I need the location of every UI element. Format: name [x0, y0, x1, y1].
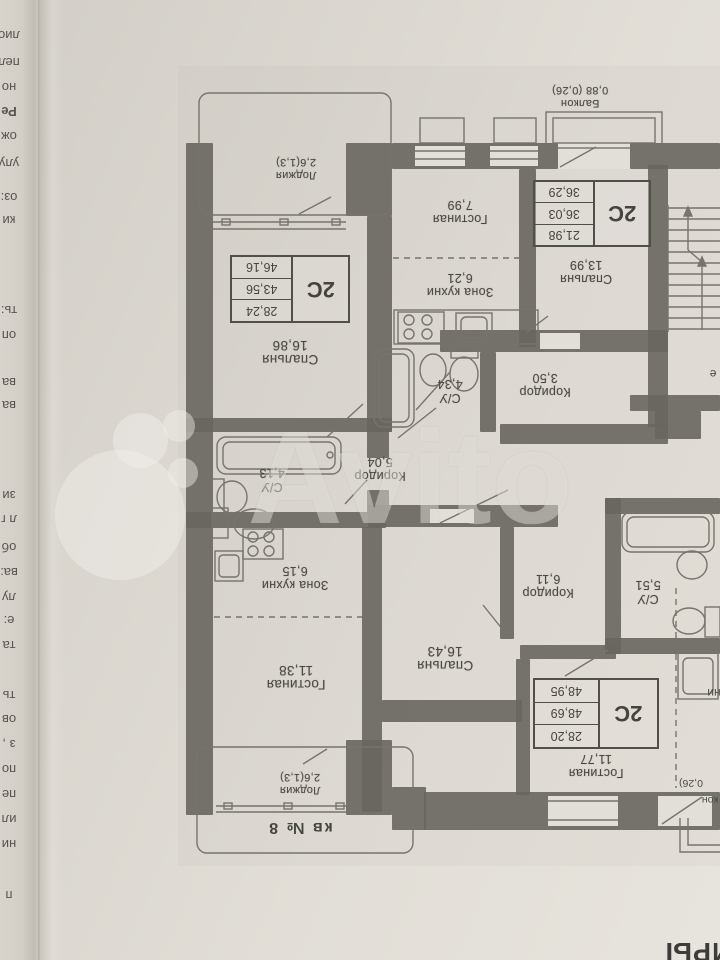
edge-text-fragment: ва — [0, 398, 30, 413]
door-swing-line — [398, 408, 436, 438]
window-line — [548, 797, 702, 824]
kitchen-sink-icon — [456, 313, 492, 342]
edge-text-fragment: ил — [0, 812, 30, 827]
edge-text-fragment: ож — [0, 129, 30, 144]
room-label-kitchen-615: Зона кухни 6,15 — [235, 564, 355, 592]
floor-plan-photo: Лоджия 2,6(1,3) Спальня 16,86 С/У 4,13 К… — [0, 0, 720, 960]
room-label-kitchen-cut: ни — [694, 686, 720, 700]
area-table-apt-bottom-right: 2С 28,20 48,69 48,95 — [533, 678, 659, 749]
room-label-living-1138: Гостиная 11,38 — [236, 663, 356, 691]
door-swing-line — [440, 490, 508, 523]
room-label-corridor-504: Коридор 5,04 — [320, 455, 440, 483]
edge-text-fragment: ни — [0, 837, 30, 852]
unit-number-label: кв № 8 — [225, 818, 375, 836]
edge-text-fragment: Ре — [0, 104, 30, 119]
edge-text-fragment: оз: — [0, 190, 30, 205]
edge-text-fragment: л г — [0, 512, 30, 527]
stove-icon — [398, 312, 444, 343]
room-label-balcony-cut-name: кон — [688, 794, 720, 806]
area-table-apt-top-right: 2С 21,98 36,03 36,29 — [533, 180, 651, 247]
edge-text-fragment: ть: — [0, 303, 30, 318]
right-edge-letter: е — [698, 367, 720, 381]
area-value: 36,29 — [535, 182, 593, 202]
room-label-su-413: С/У 4,13 — [212, 466, 332, 494]
edge-text-fragment: ть — [0, 688, 30, 703]
room-label-balcony-cut-area: 0,26) — [664, 777, 718, 789]
door-swing-line — [483, 605, 503, 630]
stairs-icon — [668, 205, 720, 332]
room-label-corridor-350: Коридор 3,50 — [485, 371, 605, 399]
area-value: 28,20 — [535, 724, 598, 747]
room-label-su-551: С/У 5,51 — [588, 578, 708, 606]
area-table-apt-left: 2С 28,24 43,56 46,16 — [230, 255, 350, 323]
area-value: 48,95 — [535, 680, 598, 702]
door-swing-line — [560, 147, 596, 167]
door-swing-line — [327, 404, 363, 437]
room-label-bedroom-1399: Спальня 13,99 — [526, 258, 646, 286]
area-value: 28,24 — [232, 299, 291, 321]
door-swing-line — [299, 197, 331, 214]
apartment-type-cell: 2С — [291, 257, 348, 321]
edge-text-fragment: пе — [0, 787, 30, 802]
area-value: 46,16 — [232, 257, 291, 278]
room-label-loggia-bottom: Лоджия 2,6(1,3) — [240, 771, 360, 796]
edge-text-fragment: зи — [0, 488, 30, 503]
sink-icon — [677, 551, 707, 579]
door-swing-line — [303, 749, 327, 764]
page-crease — [38, 0, 64, 960]
edge-text-fragment: но — [0, 80, 30, 95]
edge-text-fragment: е: — [0, 613, 30, 628]
area-value: 36,03 — [535, 202, 593, 223]
area-value: 43,56 — [232, 278, 291, 300]
kitchen-counter — [394, 310, 538, 344]
room-label-bedroom-1686: Спальня 16,86 — [230, 338, 350, 366]
balcony-outline — [546, 112, 662, 167]
edge-text-fragment: ва — [0, 375, 30, 390]
edge-text-fragment: оп — [0, 328, 30, 343]
door-swing-line — [345, 480, 367, 504]
door-swing-line — [565, 650, 608, 676]
bathtub-icon — [622, 512, 714, 552]
apartment-type-cell: 2С — [593, 182, 649, 245]
edge-text-fragment: п — [0, 888, 30, 903]
room-label-bedroom-1643: Спальня 16,43 — [385, 644, 505, 672]
edge-text-fragment: ки — [0, 213, 30, 228]
loggia-outline — [197, 747, 413, 853]
edge-text-fragment: улу — [0, 156, 30, 171]
window-line — [415, 118, 538, 159]
room-label-living-1177: Гостиная 11,77 — [536, 752, 656, 780]
edge-text-fragment: з , — [0, 737, 30, 752]
edge-text-fragment: ва: — [0, 565, 30, 580]
edge-text-fragment: та — [0, 638, 30, 653]
edge-text-fragment: по — [0, 762, 30, 777]
room-label-balcony-top: Балкон 0,88 (0,26) — [520, 84, 640, 109]
apartment-type-cell: 2С — [598, 680, 657, 747]
room-label-living-799: Гостиная 7,99 — [400, 198, 520, 226]
room-label-kitchen-621: Зона кухни 6,21 — [400, 271, 520, 299]
toilet-icon — [673, 607, 720, 637]
edge-text-fragment: ов — [0, 712, 30, 727]
edge-text-fragment: об — [0, 540, 30, 555]
edge-text-fragment: пел — [0, 55, 30, 70]
edge-text-fragment: лио — [0, 28, 30, 43]
area-value: 21,98 — [535, 224, 593, 245]
area-value: 48,69 — [535, 702, 598, 725]
page-heading-fragment: ИРЫ — [648, 936, 720, 960]
room-label-loggia-top: Лоджия 2,6(1,3) — [236, 156, 356, 181]
edge-text-fragment: лу — [0, 590, 30, 605]
balcony-outline — [680, 818, 720, 852]
stove-icon — [243, 529, 283, 559]
